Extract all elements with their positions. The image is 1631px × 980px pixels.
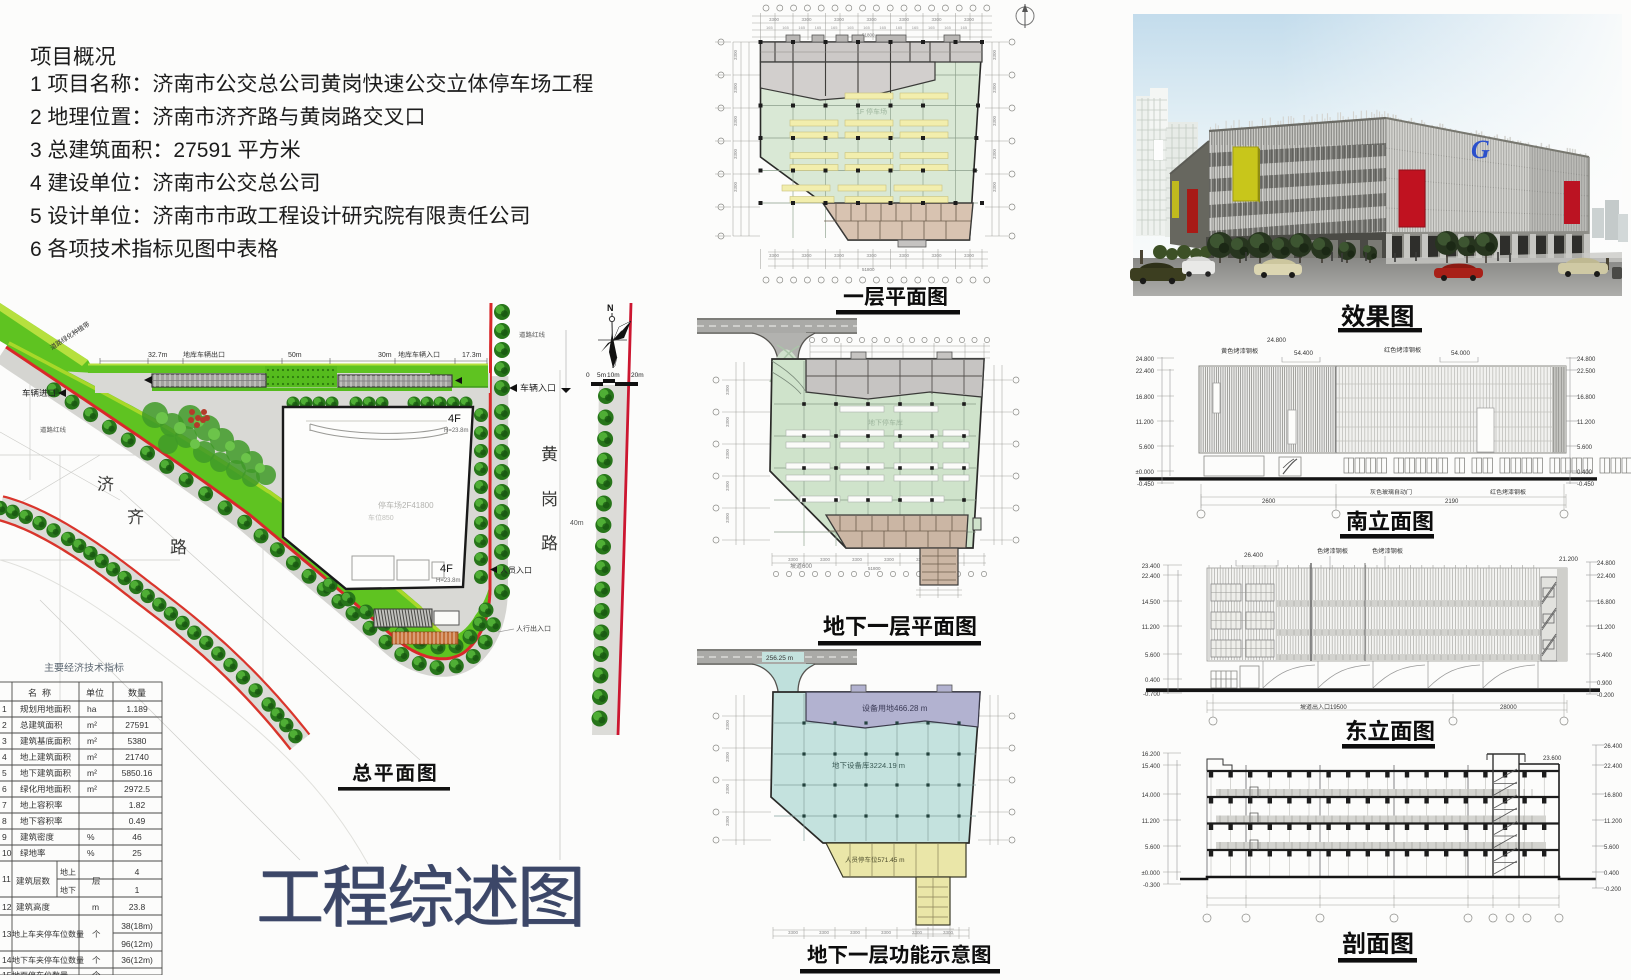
- svg-text:256.25 m: 256.25 m: [766, 655, 793, 662]
- svg-text:165: 165: [798, 25, 805, 30]
- svg-text:11.200: 11.200: [1597, 625, 1616, 631]
- svg-text:ha: ha: [87, 704, 97, 714]
- svg-text:3300: 3300: [733, 82, 738, 93]
- svg-text:1.82: 1.82: [129, 800, 146, 810]
- svg-text:3: 3: [30, 139, 42, 162]
- svg-text:165: 165: [782, 25, 789, 30]
- svg-text:5: 5: [2, 768, 7, 778]
- svg-text:4F: 4F: [448, 413, 461, 425]
- svg-text:5m: 5m: [597, 372, 606, 379]
- svg-text:96(12m): 96(12m): [121, 939, 153, 949]
- svg-text:3300: 3300: [725, 480, 730, 491]
- svg-text:3300: 3300: [733, 115, 738, 126]
- svg-text:3300: 3300: [725, 448, 730, 459]
- svg-text:14.500: 14.500: [1142, 600, 1161, 606]
- svg-text:54.000: 54.000: [1451, 350, 1470, 357]
- svg-text:16.800: 16.800: [1597, 600, 1616, 606]
- svg-text:3300: 3300: [992, 181, 997, 192]
- svg-text:10m: 10m: [607, 372, 620, 379]
- svg-text:±0.000: ±0.000: [1136, 470, 1155, 476]
- svg-text:2190: 2190: [1445, 499, 1459, 505]
- svg-text:6: 6: [30, 238, 42, 261]
- svg-text:850: 850: [382, 515, 394, 522]
- svg-text:7: 7: [2, 800, 7, 810]
- svg-text:14: 14: [2, 955, 12, 965]
- svg-text:4: 4: [135, 867, 140, 877]
- svg-text:3300: 3300: [725, 512, 730, 523]
- svg-text:1: 1: [135, 885, 140, 895]
- svg-text:26.400: 26.400: [1604, 744, 1623, 750]
- svg-text:5.600: 5.600: [1577, 445, 1593, 451]
- svg-text:0.400: 0.400: [1577, 470, 1593, 476]
- svg-text:3300: 3300: [725, 815, 730, 826]
- svg-text:3300: 3300: [992, 82, 997, 93]
- svg-text:17.3m: 17.3m: [462, 352, 482, 359]
- svg-text:0.900: 0.900: [1597, 681, 1613, 687]
- svg-text:-0.450: -0.450: [1137, 482, 1155, 488]
- svg-text:3300: 3300: [834, 253, 845, 258]
- svg-text:3300: 3300: [899, 17, 910, 22]
- svg-text:3300: 3300: [802, 253, 813, 258]
- svg-text:2: 2: [2, 720, 7, 730]
- svg-text:3300: 3300: [788, 557, 799, 562]
- svg-text:3300: 3300: [899, 253, 910, 258]
- svg-text:1: 1: [30, 73, 42, 96]
- svg-text:466.28 m: 466.28 m: [894, 704, 928, 713]
- svg-text:3300: 3300: [964, 17, 975, 22]
- svg-text:165: 165: [896, 25, 903, 30]
- svg-text:38(18m): 38(18m): [121, 921, 153, 931]
- svg-text:-0.200: -0.200: [1597, 693, 1615, 699]
- svg-text:2F41800: 2F41800: [402, 501, 434, 510]
- svg-text:m²: m²: [87, 736, 97, 746]
- svg-text:24.800: 24.800: [1136, 357, 1155, 363]
- svg-text:165: 165: [928, 25, 935, 30]
- svg-text:16.800: 16.800: [1604, 793, 1623, 799]
- svg-text:5.600: 5.600: [1145, 845, 1161, 851]
- svg-text:3300: 3300: [725, 416, 730, 427]
- svg-text:165: 165: [879, 25, 886, 30]
- svg-text:15: 15: [2, 970, 12, 975]
- svg-text:3300: 3300: [867, 253, 878, 258]
- svg-text:3300: 3300: [802, 17, 813, 22]
- svg-text:3300: 3300: [733, 181, 738, 192]
- svg-text:3300: 3300: [881, 930, 892, 935]
- svg-text:3300: 3300: [769, 17, 780, 22]
- svg-text:H=23.8m: H=23.8m: [436, 578, 461, 584]
- svg-text:3300: 3300: [850, 930, 861, 935]
- svg-text:2972.5: 2972.5: [124, 784, 150, 794]
- svg-text:24.800: 24.800: [1597, 561, 1616, 567]
- svg-text:10: 10: [2, 848, 12, 858]
- svg-text:11.200: 11.200: [1142, 819, 1161, 825]
- svg-text:3300: 3300: [884, 557, 895, 562]
- svg-text:22.400: 22.400: [1142, 574, 1161, 580]
- svg-text:%: %: [87, 832, 95, 842]
- svg-text:5.600: 5.600: [1145, 653, 1161, 659]
- svg-text:3300: 3300: [992, 115, 997, 126]
- svg-text:2600: 2600: [1262, 499, 1276, 505]
- svg-text:12: 12: [2, 902, 12, 912]
- svg-text:3300: 3300: [852, 557, 863, 562]
- svg-text:11.200: 11.200: [1604, 819, 1623, 825]
- svg-text:G: G: [1471, 135, 1490, 164]
- svg-text:21.200: 21.200: [1559, 556, 1578, 563]
- svg-text:26.400: 26.400: [1244, 552, 1263, 559]
- svg-text:5380: 5380: [128, 736, 147, 746]
- svg-text:50m: 50m: [288, 352, 302, 359]
- svg-text:16.800: 16.800: [1577, 395, 1596, 401]
- svg-text:3300: 3300: [932, 253, 943, 258]
- svg-text:3300: 3300: [725, 751, 730, 762]
- svg-text:3: 3: [2, 736, 7, 746]
- svg-text:m²: m²: [87, 768, 97, 778]
- svg-text:13: 13: [2, 929, 12, 939]
- svg-text:0: 0: [586, 372, 590, 379]
- svg-text:22.400: 22.400: [1597, 574, 1616, 580]
- svg-text:3300: 3300: [725, 384, 730, 395]
- svg-text:0.400: 0.400: [1604, 871, 1620, 877]
- svg-text:11.200: 11.200: [1577, 420, 1596, 426]
- svg-text:14.000: 14.000: [1142, 793, 1161, 799]
- svg-text:3300: 3300: [733, 49, 738, 60]
- svg-text:165: 165: [847, 25, 854, 30]
- svg-text:3300: 3300: [964, 253, 975, 258]
- svg-text:40m: 40m: [570, 520, 584, 527]
- svg-text:15.400: 15.400: [1142, 764, 1161, 770]
- svg-text:5.600: 5.600: [1604, 845, 1620, 851]
- svg-text:-0.200: -0.200: [1604, 887, 1622, 893]
- svg-text:22.400: 22.400: [1604, 764, 1623, 770]
- svg-text:-0.450: -0.450: [1577, 482, 1595, 488]
- svg-text:3300: 3300: [834, 17, 845, 22]
- svg-text:36(12m): 36(12m): [121, 955, 153, 965]
- svg-text:0.49: 0.49: [129, 816, 146, 826]
- svg-text:165: 165: [831, 25, 838, 30]
- svg-text:46: 46: [132, 832, 142, 842]
- svg-text:1F: 1F: [856, 109, 864, 116]
- svg-text:3300: 3300: [788, 930, 799, 935]
- svg-text:5.400: 5.400: [1597, 653, 1613, 659]
- svg-text:165: 165: [766, 25, 773, 30]
- svg-text:3300: 3300: [992, 49, 997, 60]
- svg-text:0.400: 0.400: [1145, 678, 1161, 684]
- svg-text:8: 8: [2, 816, 7, 826]
- svg-text:571.45 m: 571.45 m: [878, 857, 905, 864]
- svg-text:20m: 20m: [631, 372, 644, 379]
- svg-text:16.200: 16.200: [1142, 752, 1161, 758]
- svg-text:m²: m²: [87, 720, 97, 730]
- svg-text:25: 25: [132, 848, 142, 858]
- svg-text:5850.16: 5850.16: [122, 768, 153, 778]
- svg-text:4F: 4F: [440, 563, 453, 575]
- svg-text:3300: 3300: [867, 17, 878, 22]
- svg-text:24.800: 24.800: [1267, 337, 1286, 344]
- svg-text:4: 4: [30, 172, 42, 195]
- svg-text:-0.700: -0.700: [1143, 692, 1161, 698]
- svg-text:165: 165: [944, 25, 951, 30]
- svg-text:24.800: 24.800: [1577, 357, 1596, 363]
- svg-text:m: m: [92, 902, 99, 912]
- svg-text:165: 165: [960, 25, 967, 30]
- svg-text:21740: 21740: [125, 752, 149, 762]
- svg-text:1: 1: [2, 704, 7, 714]
- svg-text:3300: 3300: [769, 253, 780, 258]
- svg-text:3300: 3300: [819, 930, 830, 935]
- svg-text:165: 165: [912, 25, 919, 30]
- svg-text:3224.19 m: 3224.19 m: [870, 761, 905, 770]
- svg-text:3300: 3300: [932, 17, 943, 22]
- svg-text:m²: m²: [87, 752, 97, 762]
- svg-text:19500: 19500: [1330, 705, 1347, 711]
- svg-text:27591: 27591: [173, 139, 231, 162]
- svg-text:22.400: 22.400: [1136, 369, 1155, 375]
- svg-text:22.500: 22.500: [1577, 369, 1596, 375]
- svg-text:3300: 3300: [725, 783, 730, 794]
- svg-text:m²: m²: [87, 784, 97, 794]
- svg-text:2: 2: [30, 106, 42, 129]
- svg-text:6: 6: [2, 784, 7, 794]
- svg-text:±0.000: ±0.000: [1142, 871, 1161, 877]
- svg-text:23.400: 23.400: [1142, 564, 1161, 570]
- svg-text:30m: 30m: [378, 352, 392, 359]
- svg-text:-0.300: -0.300: [1143, 883, 1161, 889]
- svg-text:5: 5: [30, 205, 42, 228]
- svg-text:23.8: 23.8: [129, 902, 146, 912]
- svg-text:51800: 51800: [868, 566, 881, 571]
- svg-text:N: N: [607, 303, 614, 313]
- svg-text:3300: 3300: [992, 148, 997, 159]
- svg-text:600: 600: [802, 564, 813, 570]
- svg-text:23.600: 23.600: [1543, 756, 1562, 762]
- svg-text:27591: 27591: [125, 720, 149, 730]
- svg-text:5.600: 5.600: [1139, 445, 1155, 451]
- svg-text:%: %: [87, 848, 95, 858]
- svg-text:11.200: 11.200: [1142, 625, 1161, 631]
- svg-text:32.7m: 32.7m: [148, 352, 168, 359]
- svg-text:9: 9: [2, 832, 7, 842]
- svg-text:1.189: 1.189: [126, 704, 148, 714]
- svg-text:28000: 28000: [1500, 705, 1517, 711]
- svg-text:11: 11: [2, 874, 11, 884]
- svg-text:11.200: 11.200: [1136, 420, 1155, 426]
- svg-text:4: 4: [2, 752, 7, 762]
- svg-text:H=23.8m: H=23.8m: [444, 428, 469, 434]
- svg-text:54.400: 54.400: [1294, 350, 1313, 357]
- svg-text:165: 165: [815, 25, 822, 30]
- svg-text:16.800: 16.800: [1136, 395, 1155, 401]
- svg-text:3300: 3300: [725, 719, 730, 730]
- svg-text:3300: 3300: [733, 148, 738, 159]
- svg-text:165: 165: [863, 25, 870, 30]
- svg-text:3300: 3300: [820, 557, 831, 562]
